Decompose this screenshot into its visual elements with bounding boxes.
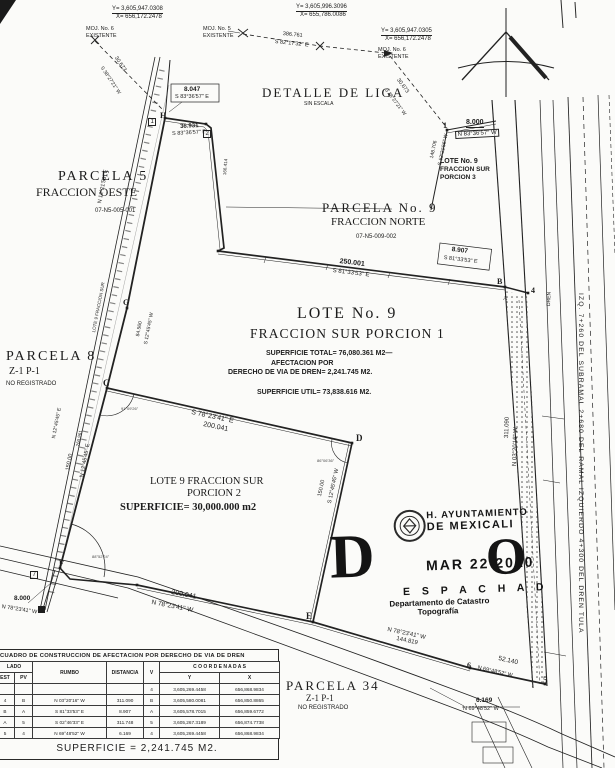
vertex-4: 4 (531, 287, 535, 295)
survey-label: 86°06'36" (317, 459, 334, 463)
survey-label: 8.000 (14, 596, 30, 603)
survey-label: N 69°48'52" W (463, 707, 499, 713)
table-row: BAS 81°33'53" E8.907A3,605,578.7015656,8… (0, 706, 280, 717)
vertex-e: E (306, 612, 312, 621)
table-cell-v: 4 (144, 684, 160, 695)
col-rumbo: RUMBO (33, 662, 107, 684)
vertex-2: 2 (203, 130, 211, 138)
vertex-7: 7 (30, 571, 38, 579)
survey-label: 91°09'26" (121, 407, 138, 411)
table-cell-dist (107, 684, 144, 695)
col-distancia: DISTANCIA (107, 662, 144, 684)
stamp-espachad: E S P A C H A D (403, 582, 548, 598)
mojonera6-right-y: Y= 3,605,947.0305 (381, 28, 432, 36)
col-pv: PV (15, 673, 33, 684)
table-cell-rumbo: N 69°48'52" W (33, 728, 107, 739)
scan-corner-artifact (0, 0, 16, 24)
col-lado: LADO (0, 662, 33, 673)
table-cell-rumbo (33, 684, 107, 695)
porcion2-title: LOTE 9 FRACCION SUR (150, 476, 263, 487)
table-row: A5S 02°46'33" E311.74853,605,267.3189656… (0, 717, 280, 728)
survey-plan-page: Y= 3,605,947.0308X= 656,172.2478MOJ. No.… (0, 0, 615, 768)
dren-hatch-band (505, 291, 546, 687)
lote9-title: LOTE No. 9 (297, 306, 397, 323)
mojonera6-left-label: MOJ. No. 6 (86, 27, 114, 33)
survey-label: PORCION 2 (187, 488, 241, 499)
parcela8-title: PARCELA 8 (6, 350, 96, 365)
table-cell-rumbo: N 03°20'16" W (33, 695, 107, 706)
table-cell-x: 656,874.7738 (220, 717, 280, 728)
municipal-seal-icon (390, 505, 429, 546)
survey-label: AFECTACION POR (271, 360, 333, 367)
table-cell-y: 3,605,267.3189 (160, 717, 220, 728)
survey-label: NO REGISTRADO (298, 705, 348, 711)
superficie-util: SUPERFICIE UTIL= 73,838.616 M2. (257, 389, 371, 396)
table-row: 4BN 03°20'16" W311.090B3,605,580.0081656… (0, 695, 280, 706)
porcion2-superficie: SUPERFICIE= 30,000.000 m2 (120, 502, 256, 513)
table-cell-rumbo: S 02°46'33" E (33, 717, 107, 728)
table-cell-x: 656,868.9834 (220, 728, 280, 739)
survey-label: Z-1 P-1 (9, 367, 40, 378)
mojonera5-y: Y= 3,605,996.3096 (296, 4, 347, 12)
survey-label: EXISTENTE (86, 34, 117, 40)
vertex-b: B (497, 278, 502, 286)
survey-label: NO REGISTRADO (6, 381, 56, 387)
vertex-c: C (103, 379, 110, 388)
table-cell-y: 3,605,578.7015 (160, 706, 220, 717)
table-cell-dist: 311.090 (107, 695, 144, 706)
table-cell-pv: 4 (15, 728, 33, 739)
vertex-g: G (123, 299, 129, 307)
despachado-stamp: H. AYUNTAMIENTO DE MEXICALI MAR 22 2010 … (326, 499, 545, 626)
table-cell-x: 656,850.8865 (220, 695, 280, 706)
survey-label: 8.000 (466, 119, 484, 128)
survey-label: 6.169 (476, 698, 492, 705)
mojonera5-x: X= 655,786.0086 (300, 12, 346, 18)
vertex-f: F (59, 560, 64, 568)
north-arrow-icon (458, 8, 554, 97)
mojonera6-left-x: X= 656,172.2478 (116, 14, 162, 20)
table-cell-pv: B (15, 695, 33, 706)
survey-label: 88°52'24" (92, 555, 109, 559)
table-cell-est: 5 (0, 728, 15, 739)
table-cell-rumbo: S 81°33'53" E (33, 706, 107, 717)
dren-station-label: IZQ. 7+260 DEL SUBRAMAL 2+680 DEL RAMAL … (577, 293, 584, 634)
superficie-total: SUPERFICIE TOTAL= 76,080.361 M2— (266, 350, 392, 357)
survey-label: EXISTENTE (378, 55, 409, 61)
survey-label: FRACCION NORTE (331, 217, 425, 229)
table-cell-y: 3,605,269.4458 (160, 684, 220, 695)
table-cell-x: 656,868.9834 (220, 684, 280, 695)
table-cell-est (0, 684, 15, 695)
survey-label: Z-1 P-1 (306, 694, 334, 703)
survey-label: FRACCION SUR (440, 167, 490, 174)
table-cell-pv: A (15, 706, 33, 717)
parcela34-title: PARCELA 34 (286, 679, 380, 693)
col-x: X (220, 673, 280, 684)
construction-table: CUADRO DE CONSTRUCCION DE AFECTACION POR… (0, 649, 279, 760)
table-row: 54N 69°48'52" W6.16943,605,269.4458656,8… (0, 728, 280, 739)
survey-label: S 83°36'57" E (175, 95, 209, 101)
vertex-5: 5 (543, 676, 548, 685)
table-cell-v: 4 (144, 728, 160, 739)
survey-label: FRACCION OESTE (36, 186, 137, 199)
vertex-6: 6 (467, 662, 471, 670)
survey-label: FRACCION SUR PORCION 1 (250, 327, 445, 341)
table-cell-est: A (0, 717, 15, 728)
table-cell-v: A (144, 706, 160, 717)
detail-title: DETALLE DE LIGA (262, 86, 404, 100)
stamp-dept2: Topografía (418, 607, 459, 616)
table-cell-dist: 6.169 (107, 728, 144, 739)
stamp-letter-o: O (485, 531, 527, 584)
survey-label: 311.090 (504, 417, 511, 438)
survey-label: 07-N5-005-001 (95, 208, 135, 214)
col-v: V (144, 662, 160, 684)
survey-label: SIN ESCALA (304, 102, 333, 107)
col-coordenadas: C O O R D E N A D A S (160, 662, 280, 673)
table-cell-v: B (144, 695, 160, 706)
vertex-1: 1 (443, 122, 447, 130)
table-row: 43,605,269.4458656,868.9834 (0, 684, 280, 695)
survey-label: EXISTENTE (203, 34, 234, 40)
vertex-a: A (503, 296, 507, 302)
mojonera6-right-x: X= 656,172.2478 (385, 36, 431, 42)
survey-label: 8.047 (184, 87, 200, 94)
dren-label: DREN (547, 292, 553, 306)
survey-label: 07-N5-009-002 (356, 234, 396, 240)
vertex-h: H (160, 112, 166, 120)
vertex-d: D (356, 434, 363, 443)
table-cell-y: 3,605,580.0081 (160, 695, 220, 706)
table-cell-pv: 5 (15, 717, 33, 728)
mojonera6-left-y: Y= 3,605,947.0308 (112, 6, 163, 14)
table-cell-v: 5 (144, 717, 160, 728)
table-cell-y: 3,605,269.4458 (160, 728, 220, 739)
table-title: CUADRO DE CONSTRUCCION DE AFECTACION POR… (0, 649, 279, 661)
table-cell-pv (15, 684, 33, 695)
survey-label: 1 (148, 118, 156, 126)
stamp-letter-d: D (329, 525, 376, 589)
mojonera5-label: MOJ. No. 5 (203, 27, 231, 33)
afectacion-dren: DERECHO DE VIA DE DREN= 2,241.745 M2. (228, 369, 372, 376)
parcela9-title: PARCELA No. 9 (322, 201, 437, 215)
table-cell-dist: 311.748 (107, 717, 144, 728)
mojonera6-right-label: MOJ. No. 6 (378, 48, 406, 54)
table-cell-dist: 8.907 (107, 706, 144, 717)
table-superficie: SUPERFICIE = 2,241.745 M2. (0, 739, 279, 760)
col-est: EST (0, 673, 15, 684)
table-cell-est: 4 (0, 695, 15, 706)
col-y: Y (160, 673, 220, 684)
table-cell-est: B (0, 706, 15, 717)
porcion3-title: LOTE No. 9 (440, 158, 478, 165)
survey-label: PORCION 3 (440, 175, 476, 182)
table-cell-x: 656,859.6772 (220, 706, 280, 717)
